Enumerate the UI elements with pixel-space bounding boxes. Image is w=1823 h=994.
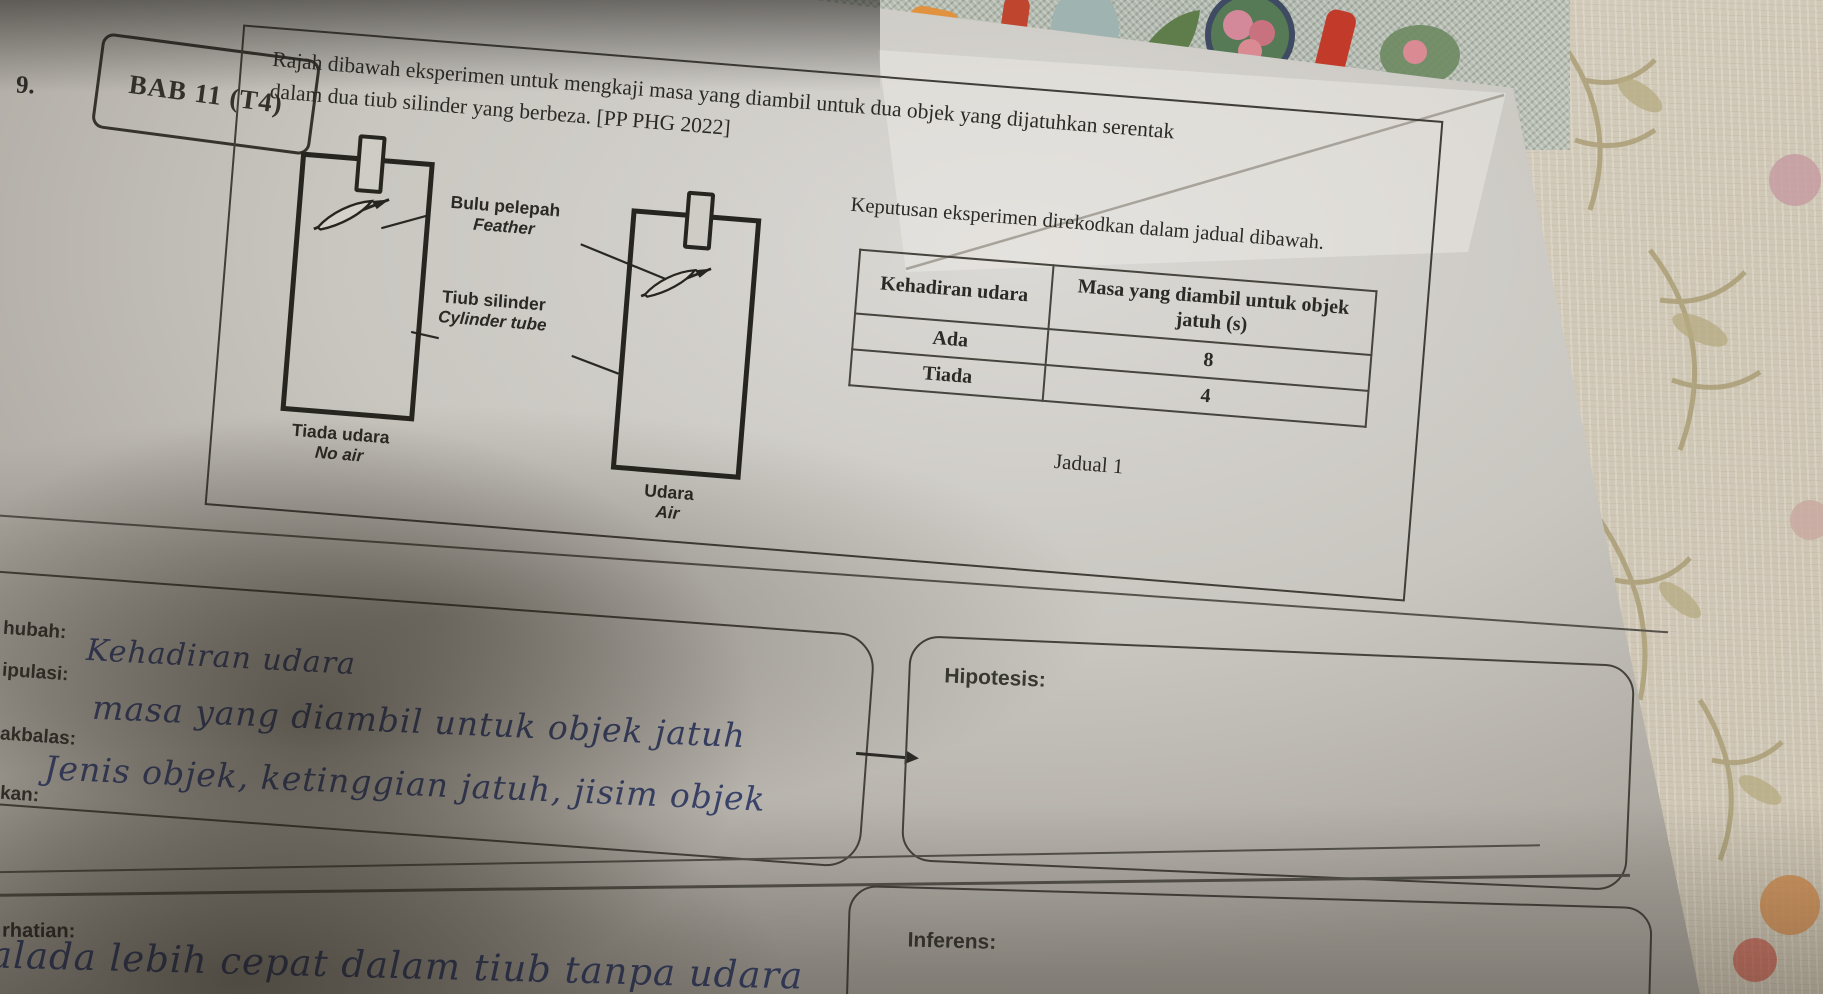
variable-label: hubah:	[2, 618, 67, 644]
tube-label: Tiub silinder Cylinder tube	[408, 284, 579, 338]
feather-icon	[308, 185, 398, 242]
left-tube-caption: Tiada udara No air	[239, 416, 442, 473]
cylinder-tube-air	[611, 208, 762, 480]
constant-variable-label: kan:	[0, 783, 40, 808]
hypothesis-label: Hipotesis:	[944, 664, 1046, 692]
feather-label: Bulu pelepah Feather	[424, 190, 585, 244]
question-box: Rajah dibawah eksperimen untuk mengkaji …	[205, 24, 1444, 601]
manipulated-variable-label: ipulasi:	[1, 660, 69, 687]
right-tube-caption: Udara Air	[605, 477, 732, 528]
table-caption: Jadual 1	[843, 432, 1335, 496]
tube-stopper-icon	[354, 134, 387, 194]
question-number: 9.	[15, 72, 35, 101]
inference-label: Inferens:	[907, 928, 996, 954]
worksheet-photo: 9. BAB 11 (T4) Rajah dibawah eksperimen …	[0, 0, 1823, 994]
feather-icon	[635, 256, 718, 308]
results-table: Kehadiran udara Masa yang diambil untuk …	[848, 249, 1377, 428]
tube-stopper-icon	[683, 191, 716, 251]
